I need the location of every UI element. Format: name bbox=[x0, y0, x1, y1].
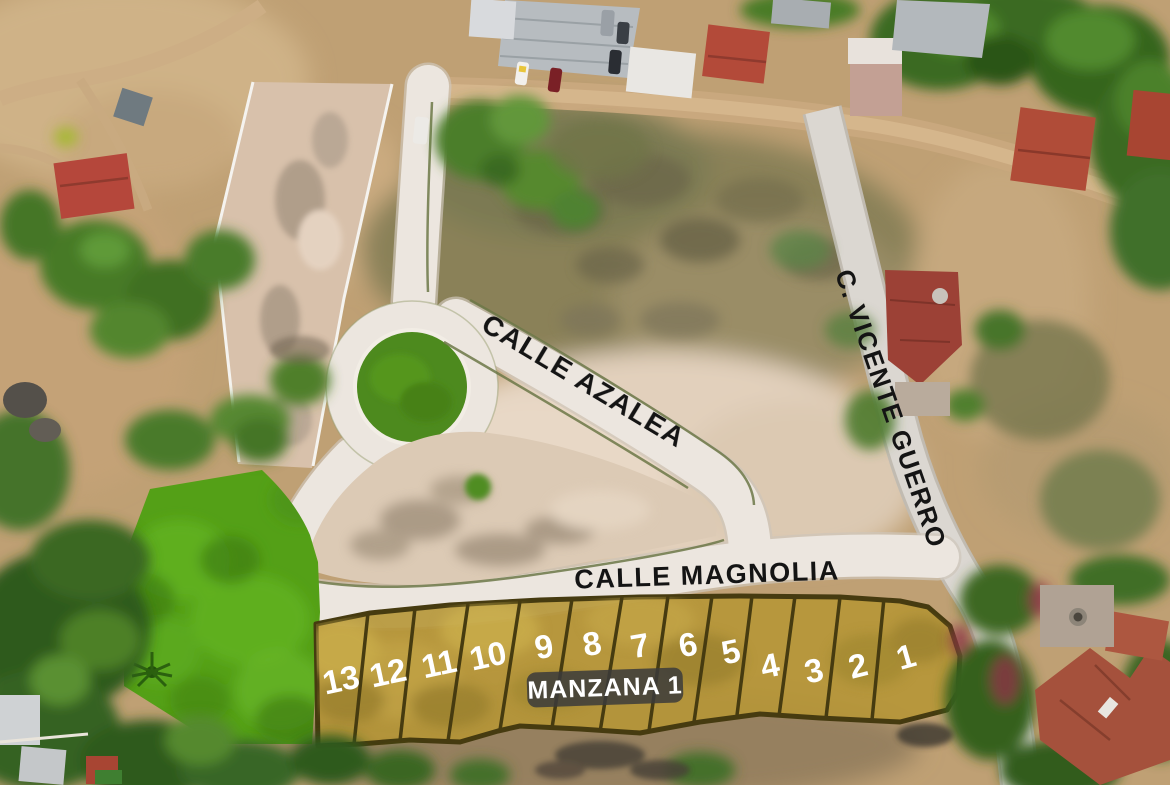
manzana-badge-label: MANZANA 1 bbox=[527, 671, 683, 704]
gray-van bbox=[600, 10, 615, 37]
red-roof-house-right-2 bbox=[1127, 90, 1170, 160]
red-roof-house-right-1 bbox=[1010, 107, 1096, 191]
dark-suv bbox=[608, 50, 622, 75]
aerial-photo: CALLE AZALEA CALLE MAGNOLIA C. VICENTE G… bbox=[0, 0, 1170, 785]
lot-number: 10 bbox=[466, 634, 510, 678]
red-roof-house-top bbox=[702, 24, 770, 83]
dark-pickup bbox=[616, 22, 630, 45]
round-bush bbox=[465, 474, 491, 500]
white-carport-roof bbox=[626, 47, 696, 99]
manzana-badge: MANZANA 1 bbox=[526, 667, 683, 707]
lot-number: 13 bbox=[319, 658, 363, 702]
white-car bbox=[413, 116, 430, 144]
aerial-lot-map-screenshot: CALLE AZALEA CALLE MAGNOLIA C. VICENTE G… bbox=[0, 0, 1170, 785]
lot-number: 12 bbox=[366, 651, 410, 695]
